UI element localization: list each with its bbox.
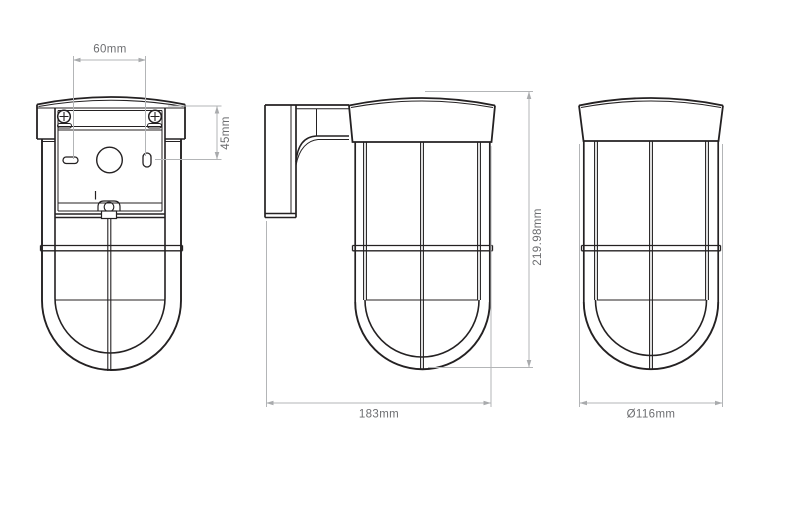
dimension-label-plate-offset: 45mm xyxy=(220,116,232,150)
cage-side-wires xyxy=(364,142,481,300)
canopy-body xyxy=(349,106,495,143)
arrow-right-icon xyxy=(715,401,723,406)
arrow-up-icon xyxy=(215,106,220,114)
arm-underside-inner xyxy=(296,140,349,166)
cage-side-wires xyxy=(595,141,709,300)
dimension-label-screw-spacing: 60mm xyxy=(93,44,127,56)
clamp-screw xyxy=(104,202,114,212)
cage-center-wire xyxy=(421,142,424,370)
dimension-height: 219.98mm xyxy=(425,92,544,368)
arrow-up-icon xyxy=(527,92,532,100)
cage-center-wire xyxy=(108,219,111,372)
view-backplate xyxy=(37,97,185,371)
dimension-drawing: 60mm 45mm 219.98mm 183mm Ø116mm xyxy=(0,0,790,509)
dimension-depth: 183mm xyxy=(266,146,491,421)
extension-lines xyxy=(580,144,723,407)
cage-band xyxy=(41,246,183,251)
cage-inner-arc xyxy=(365,300,479,357)
screw-cross-icon xyxy=(60,112,69,121)
cage-band xyxy=(353,246,493,251)
screw-tab xyxy=(148,124,162,129)
dimension-plate-offset: 45mm xyxy=(155,106,232,160)
screw-tab xyxy=(58,124,72,129)
cage-outer-arc xyxy=(584,302,718,369)
dimension-label-diameter: Ø116mm xyxy=(627,409,676,421)
extension-lines xyxy=(425,92,533,368)
cage-outer-bars xyxy=(355,142,490,302)
arrow-right-icon xyxy=(484,401,492,406)
cage-outer-arc xyxy=(42,301,181,371)
dimension-label-depth: 183mm xyxy=(359,409,399,421)
view-side xyxy=(265,98,495,370)
mounting-screw-right xyxy=(148,110,162,128)
screw-cross-icon xyxy=(151,112,160,121)
arrow-left-icon xyxy=(580,401,588,406)
cage-outer-arc xyxy=(355,302,490,369)
arrow-down-icon xyxy=(527,360,532,368)
cage-band xyxy=(582,246,721,251)
arrow-right-icon xyxy=(139,58,147,63)
view-front xyxy=(579,98,723,370)
cage-inner-arc xyxy=(596,300,707,356)
dimension-diameter: Ø116mm xyxy=(580,144,723,421)
cage-inner-arc xyxy=(55,298,165,353)
cable-entry-hole xyxy=(97,147,123,173)
keyhole-slot-right xyxy=(143,153,151,167)
mounting-screw-left xyxy=(58,110,72,128)
technical-drawing-page: 60mm 45mm 219.98mm 183mm Ø116mm xyxy=(0,0,790,509)
arrow-left-icon xyxy=(73,58,81,63)
cage-outer-bars xyxy=(42,139,181,301)
bracket-plate-bottom xyxy=(265,214,296,218)
cage-center-wire xyxy=(650,141,653,370)
canopy-body xyxy=(579,106,723,142)
arrow-down-icon xyxy=(215,152,220,160)
arrow-left-icon xyxy=(266,401,274,406)
dimension-label-height: 219.98mm xyxy=(532,208,544,266)
plate-lower-folds xyxy=(58,203,162,211)
keyhole-slot-left xyxy=(63,157,78,164)
cage-outer-bars xyxy=(584,141,718,302)
clamp-block xyxy=(102,211,117,219)
